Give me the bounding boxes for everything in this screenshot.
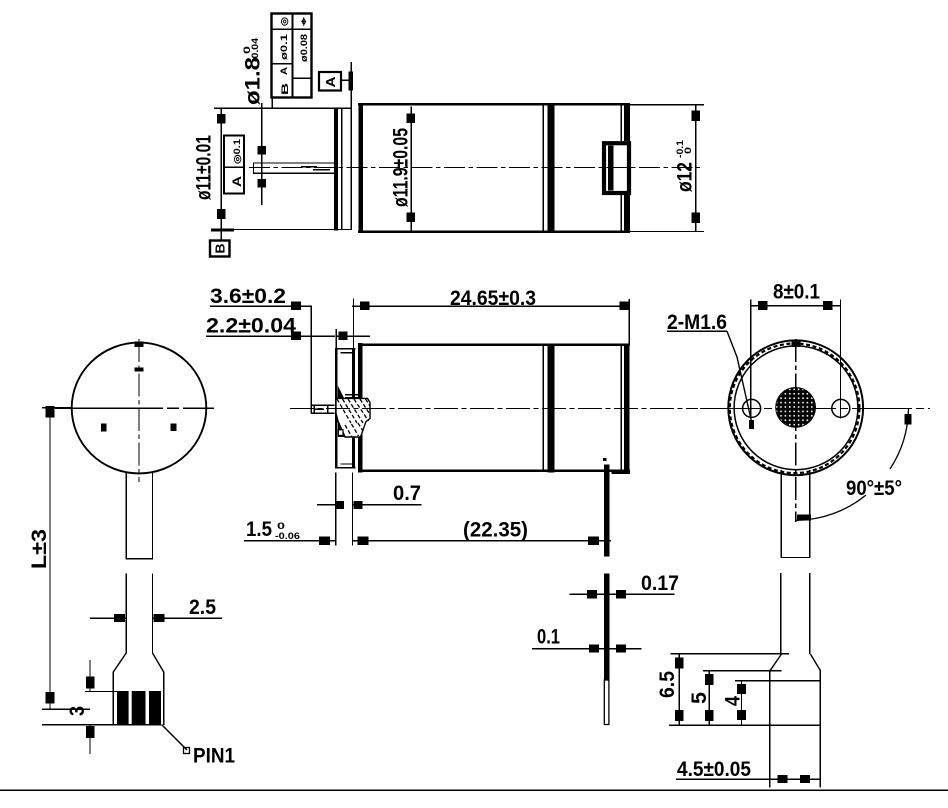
svg-text:0.7: 0.7 bbox=[393, 481, 421, 505]
svg-text:A: A bbox=[230, 176, 244, 187]
svg-text:ø12: ø12 bbox=[672, 162, 696, 192]
svg-text:B: B bbox=[213, 244, 228, 254]
svg-text:ø11±0.01: ø11±0.01 bbox=[191, 135, 215, 200]
svg-text:6.5: 6.5 bbox=[655, 671, 679, 698]
svg-text:ø0.1: ø0.1 bbox=[279, 34, 289, 60]
svg-text:90°±5°: 90°±5° bbox=[846, 476, 902, 500]
svg-text:0: 0 bbox=[277, 521, 285, 531]
svg-text:-0.06: -0.06 bbox=[275, 531, 300, 541]
svg-text:1.5: 1.5 bbox=[246, 517, 272, 541]
svg-text:0: 0 bbox=[683, 147, 693, 154]
svg-text:B: B bbox=[280, 82, 290, 95]
svg-text:4.5±0.05: 4.5±0.05 bbox=[677, 757, 751, 781]
svg-text:⌖: ⌖ bbox=[299, 15, 309, 27]
svg-text:3: 3 bbox=[65, 706, 89, 716]
svg-text:ø0.08: ø0.08 bbox=[299, 34, 309, 62]
svg-text:0.1: 0.1 bbox=[537, 624, 560, 648]
svg-text:PIN1: PIN1 bbox=[193, 743, 235, 767]
svg-text:5: 5 bbox=[687, 692, 711, 704]
svg-text:◎0.1: ◎0.1 bbox=[232, 139, 242, 164]
svg-text:24.65±0.3: 24.65±0.3 bbox=[450, 286, 536, 310]
svg-text:A: A bbox=[279, 66, 289, 75]
svg-text:8±0.1: 8±0.1 bbox=[773, 279, 820, 303]
svg-text:L±3: L±3 bbox=[27, 529, 51, 569]
svg-text:4: 4 bbox=[720, 695, 744, 706]
svg-text:(22.35): (22.35) bbox=[463, 517, 528, 541]
svg-text:2-M1.6: 2-M1.6 bbox=[667, 310, 727, 334]
svg-text:-0.04: -0.04 bbox=[250, 38, 260, 62]
svg-text:2.2±0.04: 2.2±0.04 bbox=[206, 313, 297, 337]
svg-text:A: A bbox=[323, 76, 338, 88]
svg-text:◎: ◎ bbox=[279, 17, 289, 26]
svg-text:2.5: 2.5 bbox=[189, 595, 216, 619]
svg-text:3.6±0.2: 3.6±0.2 bbox=[210, 284, 286, 308]
svg-text:ø1.8: ø1.8 bbox=[240, 57, 264, 105]
svg-text:0.17: 0.17 bbox=[641, 571, 679, 595]
